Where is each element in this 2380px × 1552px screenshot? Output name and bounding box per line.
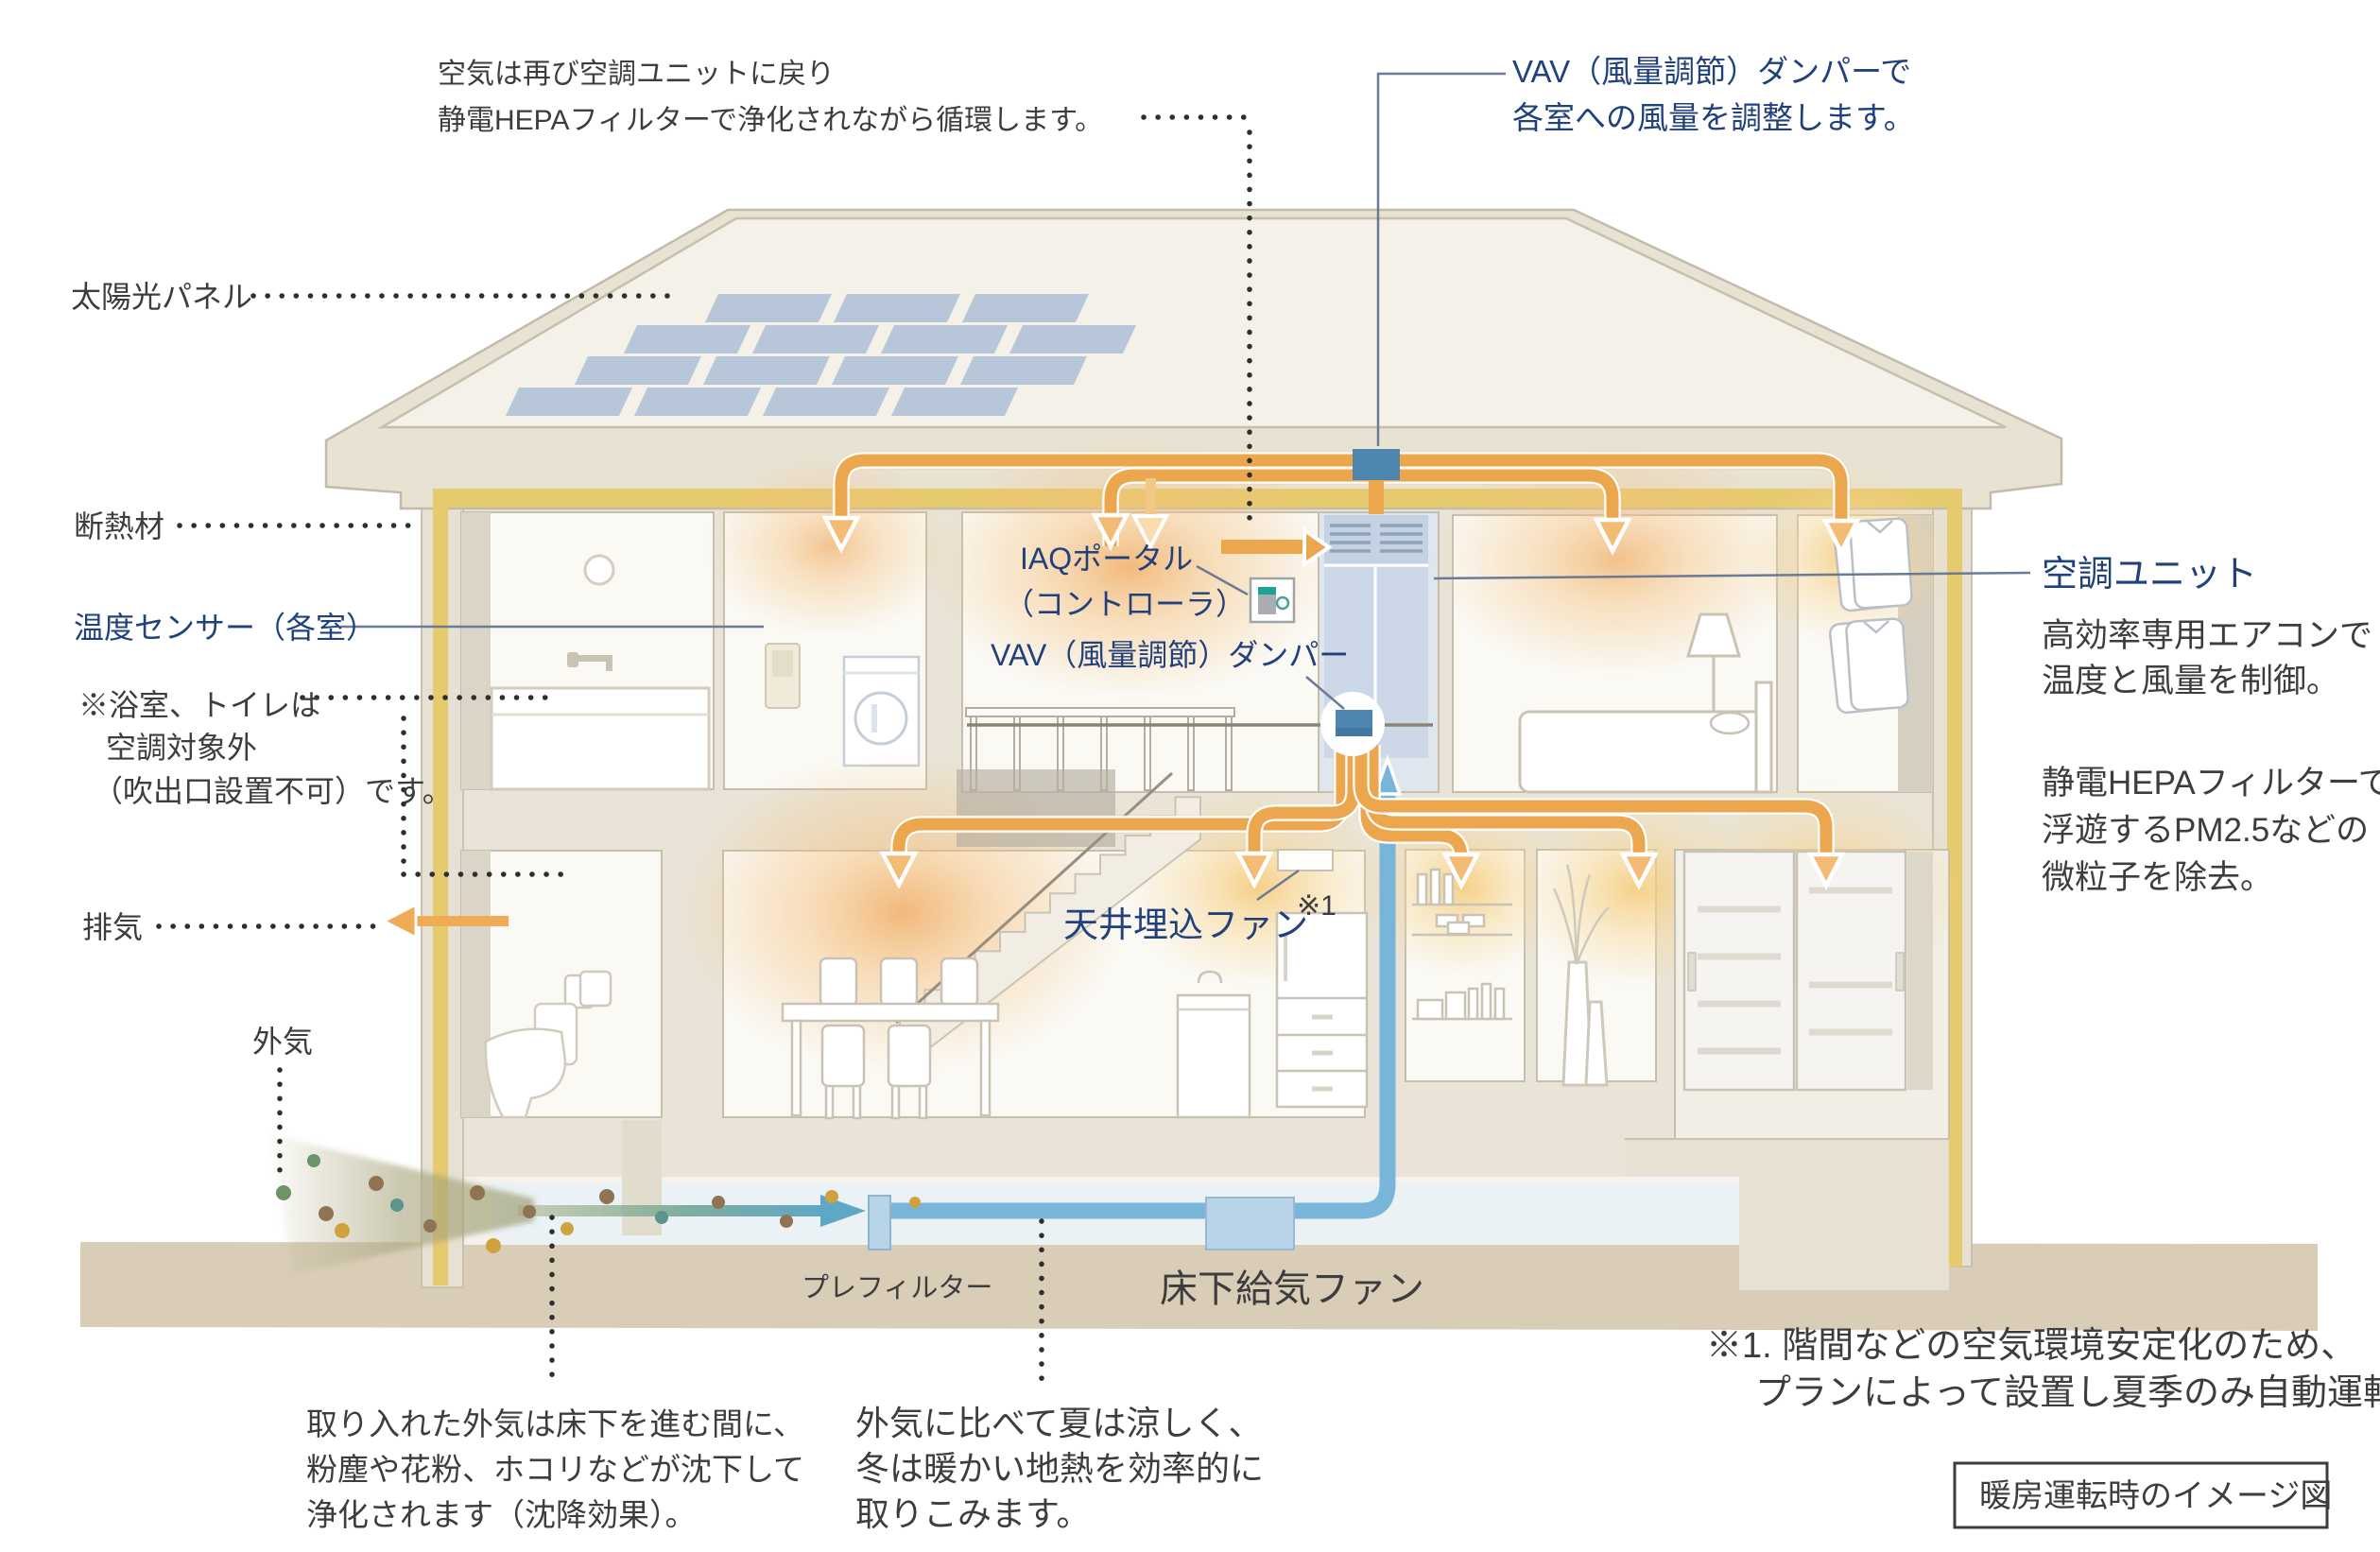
svg-text:静電HEPAフィルターで浄化されながら循環します。: 静電HEPAフィルターで浄化されながら循環します。 <box>438 105 1103 136</box>
svg-text:温度センサー（各室）: 温度センサー（各室） <box>74 611 376 645</box>
svg-text:太陽光パネル: 太陽光パネル <box>71 280 252 314</box>
svg-text:各室への風量を調整します。: 各室への風量を調整します。 <box>1512 100 1915 135</box>
svg-text:粉塵や花粉、ホコリなどが沈下して: 粉塵や花粉、ホコリなどが沈下して <box>306 1452 804 1487</box>
svg-text:温度と風量を制御。: 温度と風量を制御。 <box>2042 663 2339 699</box>
svg-text:浮遊するPM2.5などの: 浮遊するPM2.5などの <box>2042 812 2369 849</box>
svg-text:断熱材: 断熱材 <box>74 509 164 543</box>
svg-text:（コントローラ）: （コントローラ） <box>1004 587 1246 621</box>
svg-text:空調ユニット: 空調ユニット <box>2042 555 2257 595</box>
svg-text:静電HEPAフィルターで: 静電HEPAフィルターで <box>2042 765 2380 802</box>
svg-text:取りこみます。: 取りこみます。 <box>855 1494 1090 1533</box>
svg-text:※1. 階間などの空気環境安定化のため、: ※1. 階間などの空気環境安定化のため、 <box>1706 1326 2356 1366</box>
svg-text:高効率専用エアコンで: 高効率専用エアコンで <box>2042 617 2372 654</box>
svg-text:プランによって設置し夏季のみ自動運転。: プランによって設置し夏季のみ自動運転。 <box>1755 1373 2380 1413</box>
svg-text:空調対象外: 空調対象外 <box>106 731 257 765</box>
svg-text:床下給気ファン: 床下給気ファン <box>1160 1268 1424 1310</box>
svg-text:冬は暖かい地熱を効率的に: 冬は暖かい地熱を効率的に <box>855 1449 1264 1488</box>
svg-text:※1: ※1 <box>1297 890 1337 922</box>
svg-text:プレフィルター: プレフィルター <box>802 1273 992 1303</box>
svg-text:暖房運転時のイメージ図: 暖房運転時のイメージ図 <box>1979 1478 2332 1514</box>
svg-text:微粒子を除去。: 微粒子を除去。 <box>2042 859 2273 896</box>
svg-text:浄化されます（沈降効果）。: 浄化されます（沈降効果）。 <box>306 1497 697 1532</box>
svg-text:VAV（風量調節）ダンパーで: VAV（風量調節）ダンパーで <box>1512 54 1911 89</box>
svg-text:外気に比べて夏は涼しく、: 外気に比べて夏は涼しく、 <box>855 1404 1263 1442</box>
svg-text:空気は再び空調ユニットに戻り: 空気は再び空調ユニットに戻り <box>438 59 835 90</box>
svg-text:VAV（風量調節）ダンパー: VAV（風量調節）ダンパー <box>991 638 1349 672</box>
svg-text:取り入れた外気は床下を進む間に、: 取り入れた外気は床下を進む間に、 <box>306 1406 804 1441</box>
svg-text:天井埋込ファン: 天井埋込ファン <box>1063 905 1308 944</box>
svg-text:IAQポータル: IAQポータル <box>1020 542 1193 576</box>
svg-text:（吹出口設置不可）です。: （吹出口設置不可）です。 <box>93 774 453 808</box>
svg-text:外気: 外気 <box>252 1025 313 1059</box>
svg-text:排気: 排気 <box>82 910 143 944</box>
svg-text:※浴室、トイレは: ※浴室、トイレは <box>78 688 320 722</box>
